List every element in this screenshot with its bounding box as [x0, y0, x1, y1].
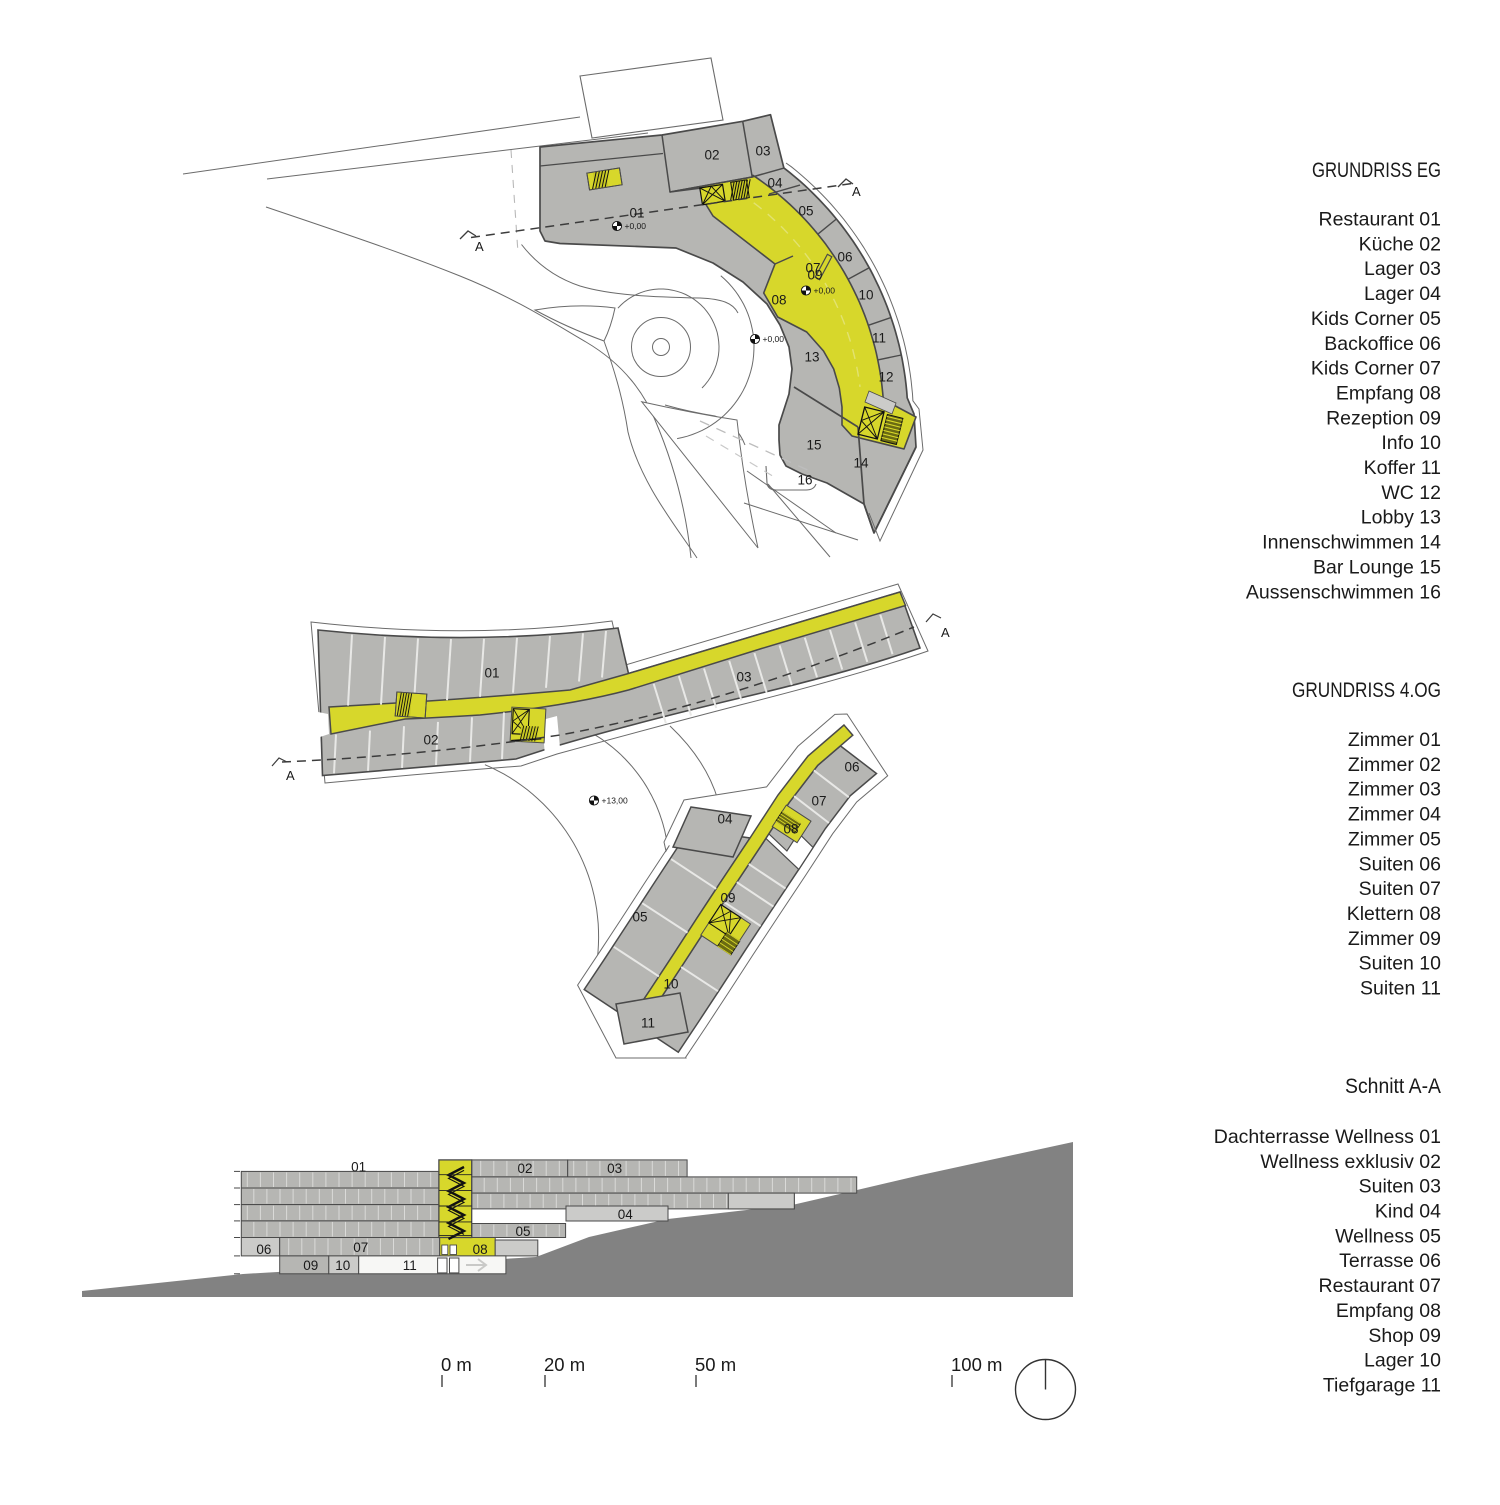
svg-text:Tiefgarage 11: Tiefgarage 11	[1323, 1375, 1441, 1397]
svg-text:10: 10	[335, 1258, 350, 1273]
svg-text:16: 16	[797, 473, 812, 488]
svg-text:Innenschwimmen 14: Innenschwimmen 14	[1262, 532, 1441, 554]
svg-text:Klettern 08: Klettern 08	[1347, 903, 1441, 925]
svg-text:50 m: 50 m	[695, 1354, 736, 1375]
svg-text:20 m: 20 m	[544, 1354, 585, 1375]
svg-text:Zimmer 03: Zimmer 03	[1348, 779, 1441, 801]
svg-text:Wellness 05: Wellness 05	[1335, 1225, 1441, 1247]
svg-text:03: 03	[736, 670, 751, 685]
svg-text:A: A	[941, 625, 950, 640]
svg-text:WC 12: WC 12	[1381, 482, 1441, 504]
svg-text:A: A	[286, 768, 295, 783]
svg-text:03: 03	[607, 1161, 622, 1176]
svg-text:06: 06	[837, 250, 852, 265]
svg-text:0 m: 0 m	[441, 1354, 472, 1375]
svg-text:A: A	[852, 184, 861, 199]
svg-text:100 m: 100 m	[951, 1354, 1002, 1375]
svg-text:05: 05	[798, 204, 813, 219]
svg-text:07: 07	[353, 1240, 368, 1255]
svg-text:13: 13	[804, 350, 819, 365]
svg-text:Zimmer 02: Zimmer 02	[1348, 754, 1441, 776]
svg-text:09: 09	[303, 1258, 318, 1273]
svg-text:Suiten 11: Suiten 11	[1360, 978, 1441, 1000]
svg-text:Info 10: Info 10	[1381, 432, 1441, 454]
svg-text:Backoffice 06: Backoffice 06	[1324, 333, 1441, 355]
svg-text:10: 10	[858, 288, 873, 303]
svg-text:Aussenschwimmen 16: Aussenschwimmen 16	[1246, 581, 1441, 603]
svg-text:Küche 02: Küche 02	[1359, 233, 1441, 255]
svg-text:Kids Corner 05: Kids Corner 05	[1311, 308, 1441, 330]
svg-text:GRUNDRISS EG: GRUNDRISS EG	[1312, 159, 1441, 182]
svg-text:Lobby 13: Lobby 13	[1361, 507, 1441, 529]
svg-text:Suiten 06: Suiten 06	[1359, 853, 1441, 875]
svg-text:11: 11	[872, 331, 886, 346]
svg-text:08: 08	[473, 1242, 488, 1257]
svg-text:GRUNDRISS 4.OG: GRUNDRISS 4.OG	[1292, 679, 1441, 702]
svg-text:Empfang 08: Empfang 08	[1336, 1300, 1441, 1322]
svg-text:03: 03	[755, 144, 770, 159]
svg-text:04: 04	[717, 812, 733, 827]
svg-text:10: 10	[663, 977, 678, 992]
svg-text:Wellness exklusiv 02: Wellness exklusiv 02	[1260, 1151, 1441, 1173]
svg-text:Terrasse 06: Terrasse 06	[1339, 1250, 1441, 1272]
svg-text:07: 07	[811, 794, 826, 809]
svg-text:+0,00: +0,00	[814, 286, 836, 296]
svg-text:08: 08	[771, 293, 786, 308]
svg-text:02: 02	[423, 733, 438, 748]
svg-text:Zimmer 04: Zimmer 04	[1348, 804, 1441, 826]
svg-text:08: 08	[783, 822, 798, 837]
svg-text:Restaurant 07: Restaurant 07	[1319, 1275, 1442, 1297]
svg-text:Lager 04: Lager 04	[1364, 283, 1441, 305]
svg-text:Rezeption 09: Rezeption 09	[1326, 407, 1441, 429]
svg-text:Shop 09: Shop 09	[1368, 1325, 1441, 1347]
svg-text:Zimmer 01: Zimmer 01	[1348, 729, 1441, 751]
svg-text:11: 11	[641, 1016, 655, 1031]
svg-text:01: 01	[484, 666, 499, 681]
svg-text:15: 15	[806, 438, 821, 453]
svg-text:04: 04	[618, 1207, 634, 1222]
svg-text:04: 04	[767, 176, 783, 191]
svg-text:Suiten 07: Suiten 07	[1359, 878, 1441, 900]
svg-text:Koffer 11: Koffer 11	[1364, 457, 1441, 479]
svg-text:+0,00: +0,00	[625, 221, 647, 231]
svg-text:+13,00: +13,00	[602, 796, 629, 806]
svg-text:Schnitt A-A: Schnitt A-A	[1345, 1075, 1441, 1098]
svg-text:05: 05	[515, 1224, 530, 1239]
svg-text:Empfang 08: Empfang 08	[1336, 383, 1441, 405]
svg-text:Bar Lounge 15: Bar Lounge 15	[1313, 556, 1441, 578]
svg-text:01: 01	[629, 206, 644, 221]
svg-text:Lager 03: Lager 03	[1364, 258, 1441, 280]
svg-text:09: 09	[807, 268, 822, 283]
svg-text:14: 14	[853, 456, 869, 471]
svg-text:A: A	[475, 239, 484, 254]
svg-text:11: 11	[403, 1258, 417, 1273]
svg-text:Kids Corner 07: Kids Corner 07	[1311, 358, 1441, 380]
svg-text:Suiten 03: Suiten 03	[1359, 1176, 1441, 1198]
svg-text:05: 05	[632, 910, 647, 925]
svg-text:Restaurant 01: Restaurant 01	[1319, 209, 1442, 231]
svg-text:Dachterrasse Wellness 01: Dachterrasse Wellness 01	[1214, 1126, 1441, 1148]
svg-text:12: 12	[878, 370, 893, 385]
svg-text:09: 09	[720, 891, 735, 906]
svg-text:Kind 04: Kind 04	[1375, 1201, 1441, 1223]
svg-text:06: 06	[256, 1242, 271, 1257]
svg-text:01: 01	[351, 1160, 366, 1175]
svg-text:06: 06	[844, 760, 859, 775]
svg-text:02: 02	[704, 148, 719, 163]
svg-text:Suiten 10: Suiten 10	[1359, 953, 1442, 975]
svg-text:Zimmer 05: Zimmer 05	[1348, 828, 1441, 850]
svg-text:+0,00: +0,00	[763, 334, 785, 344]
svg-text:02: 02	[517, 1161, 532, 1176]
svg-text:Zimmer 09: Zimmer 09	[1348, 928, 1441, 950]
svg-text:Lager 10: Lager 10	[1364, 1350, 1441, 1372]
